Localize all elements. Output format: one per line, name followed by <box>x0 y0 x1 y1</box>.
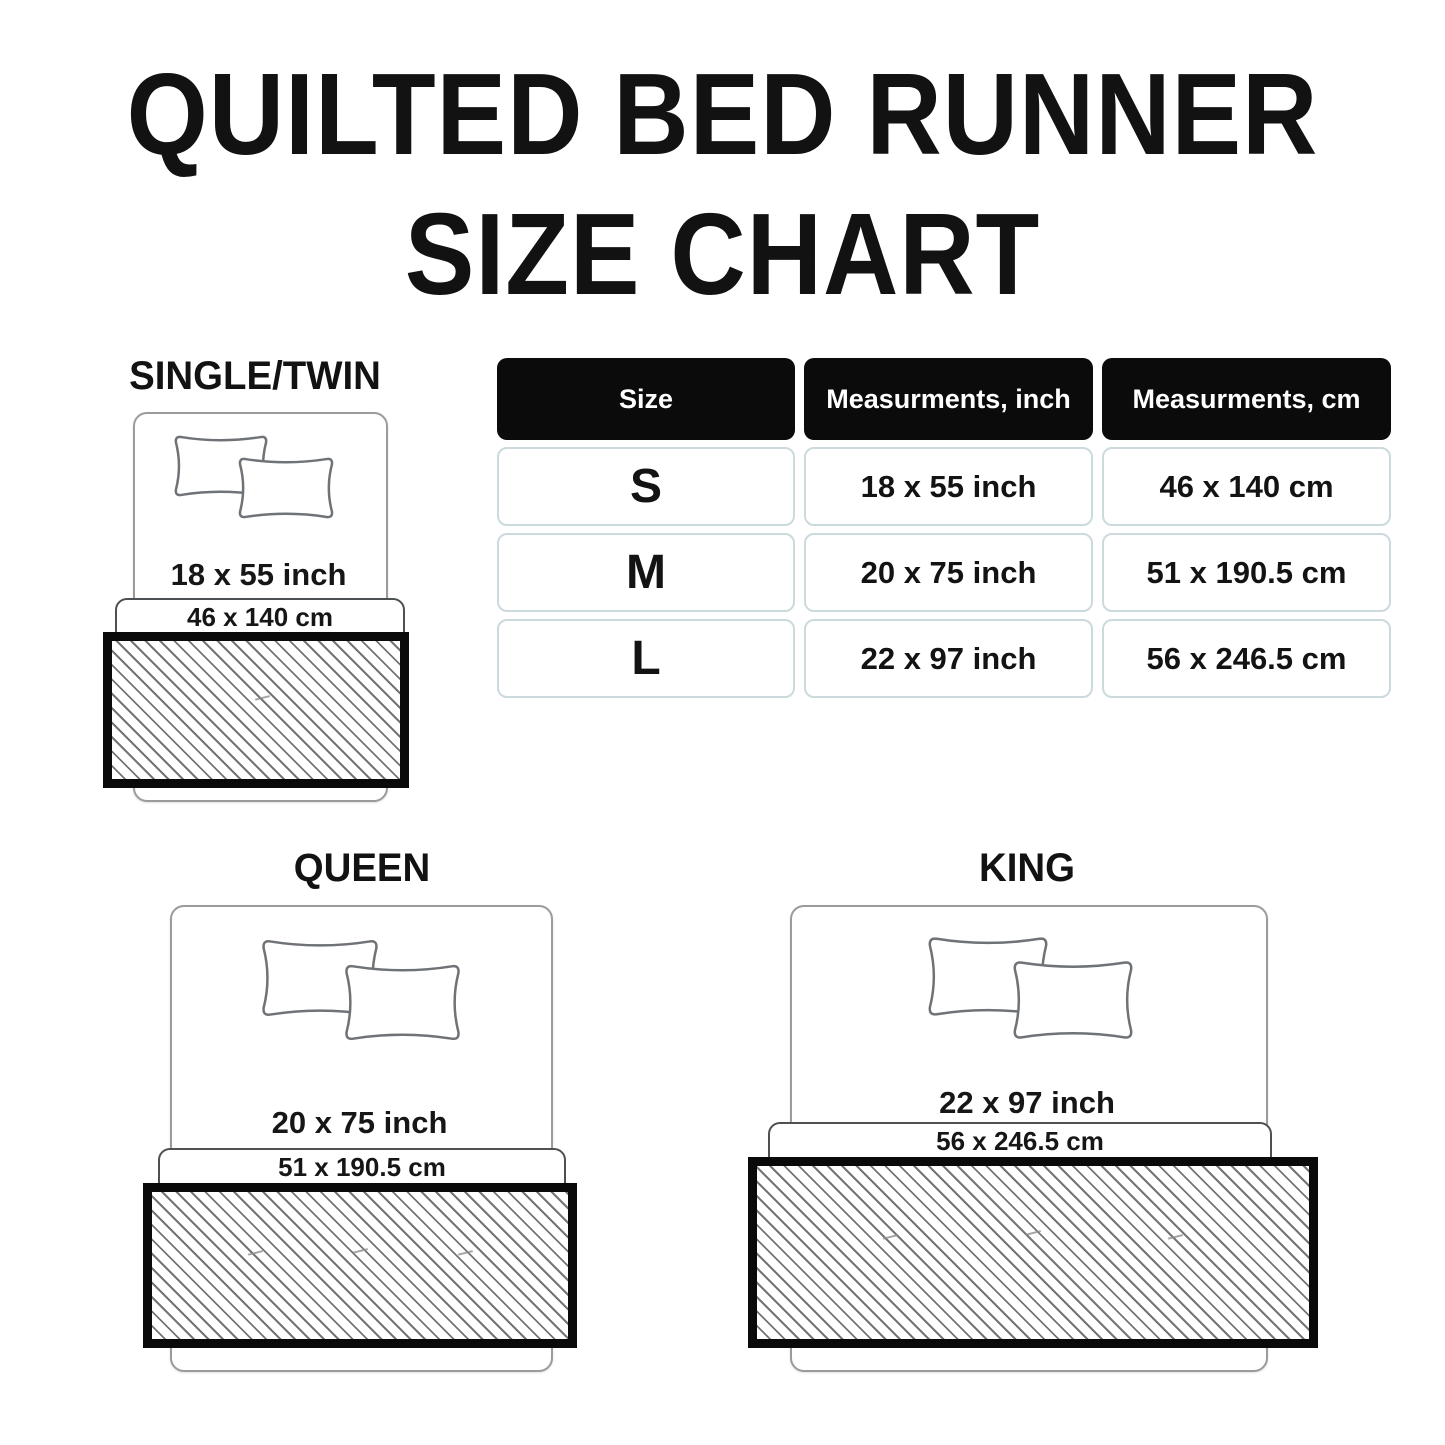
stitch-mark <box>1024 1222 1041 1235</box>
stitch-mark <box>881 1226 898 1239</box>
diagram-label-single-twin: SINGLE/TWIN <box>101 354 408 398</box>
runner-size-inch-label: 20 x 75 inch <box>170 1106 549 1140</box>
table-cell-cm-l: 56 x 246.5 cm <box>1102 619 1391 698</box>
stitch-mark <box>253 687 270 700</box>
stitch-mark <box>1166 1226 1183 1239</box>
table-cell-cm-s: 46 x 140 cm <box>1102 447 1391 526</box>
table-cell-cm-m: 51 x 190.5 cm <box>1102 533 1391 612</box>
size-chart-infographic: QUILTED BED RUNNER SIZE CHART SINGLE/TWI… <box>0 0 1445 1445</box>
stitch-mark <box>456 1242 473 1255</box>
diagram-label-queen: QUEEN <box>218 846 506 890</box>
runner-size-inch-label: 22 x 97 inch <box>790 1086 1264 1120</box>
bed-runner-swatch-queen <box>143 1183 577 1348</box>
size-table: Size Measurments, inch Measurments, cm S… <box>497 358 1392 699</box>
stitch-mark <box>351 1240 368 1253</box>
pillow-icon <box>338 955 467 1050</box>
runner-size-cm-label: 56 x 246.5 cm <box>936 1127 1104 1157</box>
bed-runner-swatch-king <box>748 1157 1318 1348</box>
stitch-mark <box>246 1242 263 1255</box>
page-title-line1: QUILTED BED RUNNER <box>72 56 1373 172</box>
pillow-icon <box>1006 951 1140 1049</box>
table-cell-inch-s: 18 x 55 inch <box>804 447 1093 526</box>
table-cell-size-s: S <box>497 447 795 526</box>
page-title-line2: SIZE CHART <box>72 196 1373 312</box>
table-header-size: Size <box>497 358 795 440</box>
table-cell-inch-l: 22 x 97 inch <box>804 619 1093 698</box>
table-header-cm: Measurments, cm <box>1102 358 1391 440</box>
table-cell-size-l: L <box>497 619 795 698</box>
table-header-inch: Measurments, inch <box>804 358 1093 440</box>
table-cell-inch-m: 20 x 75 inch <box>804 533 1093 612</box>
runner-size-cm-label: 51 x 190.5 cm <box>278 1153 446 1183</box>
runner-size-cm-label: 46 x 140 cm <box>187 603 333 633</box>
pillow-icon <box>233 450 339 526</box>
diagram-label-king: KING <box>883 846 1171 890</box>
bed-runner-swatch-single <box>103 632 409 788</box>
table-cell-size-m: M <box>497 533 795 612</box>
runner-size-inch-label: 18 x 55 inch <box>133 558 384 592</box>
